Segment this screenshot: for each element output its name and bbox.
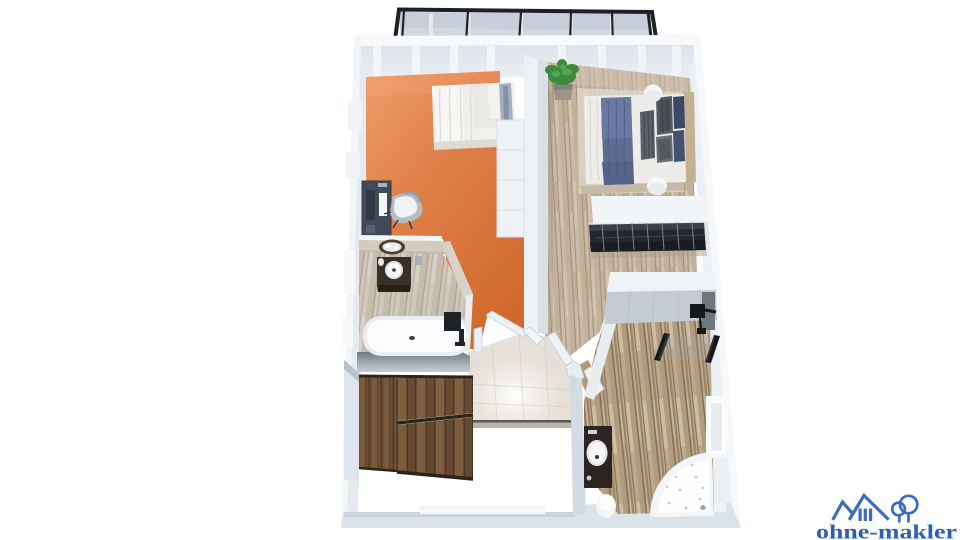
svg-text:ohne-makler: ohne-makler (816, 522, 957, 540)
